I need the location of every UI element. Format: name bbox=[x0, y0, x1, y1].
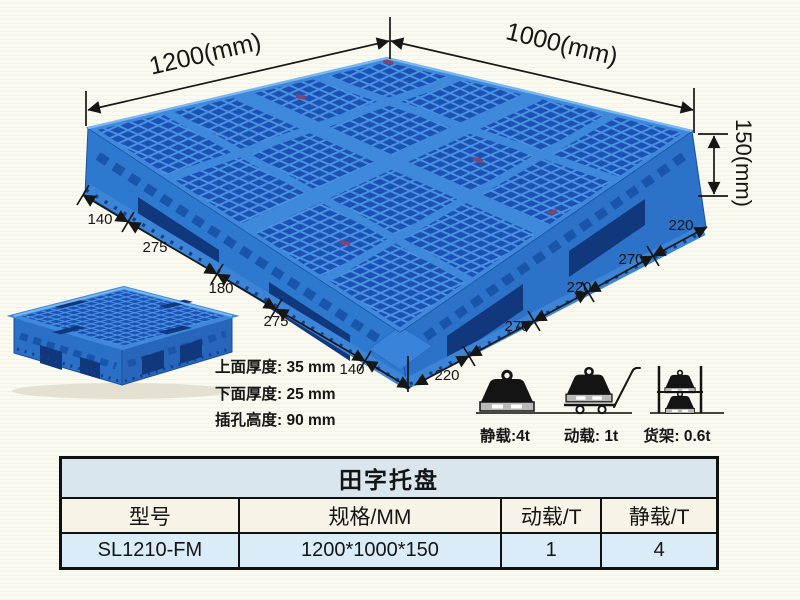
dim-length-label: 1200(mm) bbox=[147, 28, 264, 81]
right-chain-label: 220 bbox=[566, 279, 591, 296]
header-size: 规格/MM bbox=[239, 498, 501, 533]
header-static-load: 静载/T bbox=[601, 498, 717, 533]
product-sheet: 1200(mm) 1000(mm) 150(mm) 140 275 180 27… bbox=[0, 0, 800, 600]
cell-size: 1200*1000*150 bbox=[239, 533, 501, 569]
dynamic-load-label: 动载: 1t bbox=[564, 427, 618, 445]
left-chain-label: 140 bbox=[339, 361, 364, 378]
dim-height-label: 150(mm) bbox=[731, 119, 756, 207]
table-title: 田字托盘 bbox=[61, 458, 718, 499]
static-load-icon bbox=[480, 371, 534, 411]
left-chain-label: 180 bbox=[208, 280, 233, 297]
right-chain-label: 270 bbox=[618, 251, 643, 268]
left-chain-label: 275 bbox=[142, 239, 167, 256]
cell-dynamic-load: 1 bbox=[501, 533, 601, 569]
left-chain-label: 275 bbox=[263, 313, 288, 330]
small-pallet bbox=[12, 288, 232, 399]
load-capacity-icons: 静载:4t 动载: 1t 货架: 0.6t bbox=[476, 366, 724, 445]
note-fork-height: 插孔高度: 90 mm bbox=[215, 410, 336, 429]
dim-width-label: 1000(mm) bbox=[503, 17, 620, 71]
right-chain-label: 220 bbox=[668, 217, 693, 234]
left-chain-label: 140 bbox=[87, 211, 112, 228]
right-chain-label: 270 bbox=[504, 318, 529, 335]
spec-table-container: 田字托盘 型号 规格/MM 动载/T 静载/T SL1210-FM 1200*1… bbox=[59, 456, 719, 570]
static-load-label: 静载:4t bbox=[480, 426, 530, 445]
table-row: SL1210-FM 1200*1000*150 1 4 bbox=[61, 533, 718, 569]
thickness-notes: 上面厚度: 35 mm 下面厚度: 25 mm 插孔高度: 90 mm bbox=[215, 357, 336, 429]
cell-model: SL1210-FM bbox=[61, 533, 239, 569]
header-model: 型号 bbox=[61, 498, 239, 533]
note-top-thickness: 上面厚度: 35 mm bbox=[215, 357, 336, 376]
header-dynamic-load: 动载/T bbox=[501, 498, 601, 533]
rack-load-label: 货架: 0.6t bbox=[643, 426, 710, 445]
rack-load-icon bbox=[657, 366, 703, 413]
right-chain-label: 220 bbox=[434, 367, 459, 384]
spec-table: 田字托盘 型号 规格/MM 动载/T 静载/T SL1210-FM 1200*1… bbox=[59, 456, 719, 570]
dynamic-load-icon bbox=[564, 368, 640, 413]
note-bottom-thickness: 下面厚度: 25 mm bbox=[215, 384, 336, 403]
pallet-illustration: 1200(mm) 1000(mm) 150(mm) 140 275 180 27… bbox=[0, 0, 800, 456]
table-title-row: 田字托盘 bbox=[61, 458, 718, 499]
table-header-row: 型号 规格/MM 动载/T 静载/T bbox=[61, 498, 718, 533]
cell-static-load: 4 bbox=[601, 533, 717, 569]
